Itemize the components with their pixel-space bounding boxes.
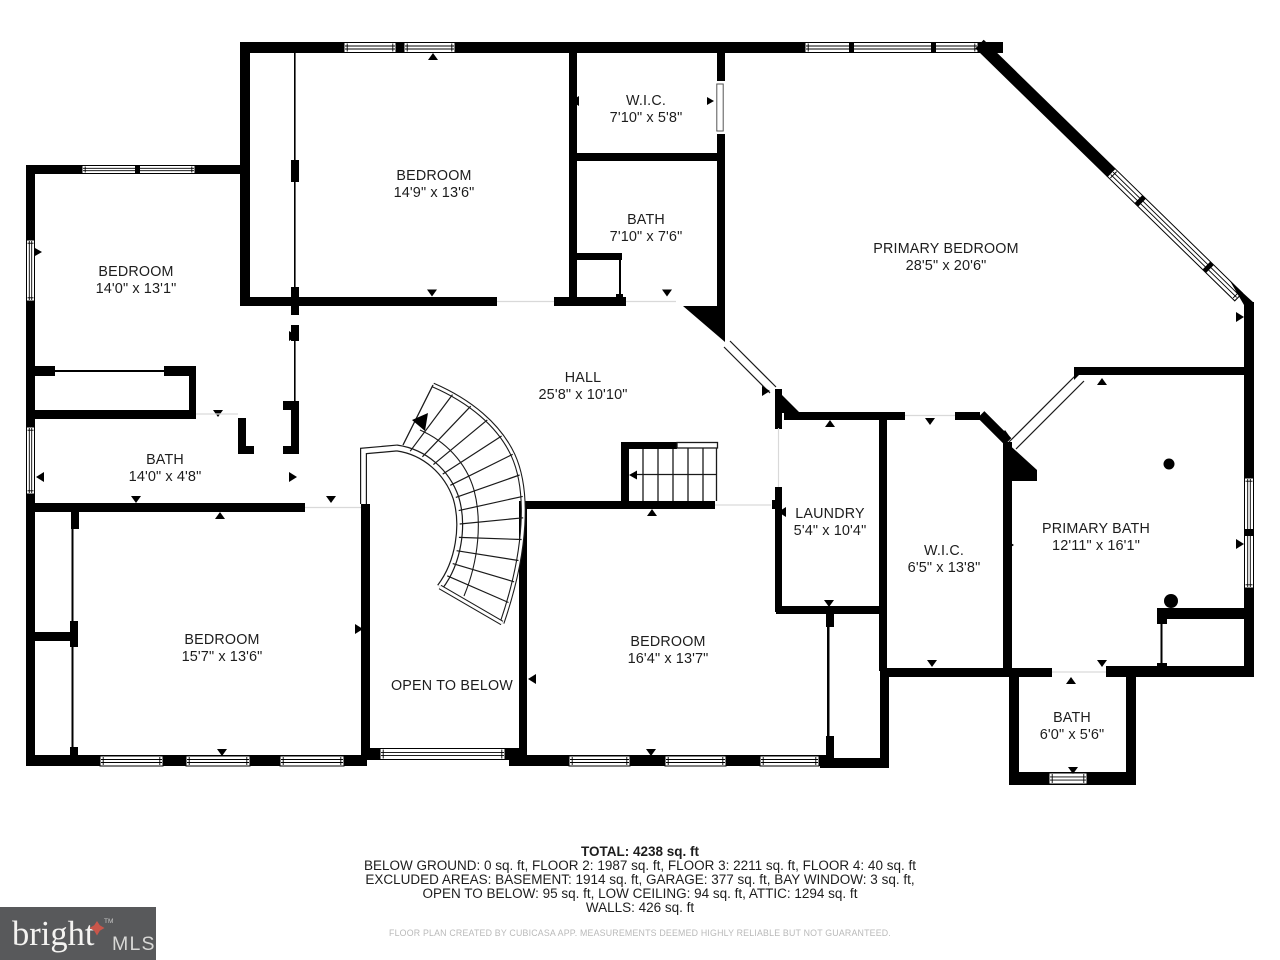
svg-text:HALL: HALL [565,370,602,386]
svg-text:6'0" x 5'6": 6'0" x 5'6" [1040,727,1105,743]
svg-text:EXCLUDED AREAS: BASEMENT: 1914: EXCLUDED AREAS: BASEMENT: 1914 sq. ft, G… [365,872,914,887]
svg-text:W.I.C.: W.I.C. [924,543,964,559]
svg-text:15'7" x 13'6": 15'7" x 13'6" [182,649,263,665]
svg-text:MLS: MLS [112,933,156,955]
svg-text:12'11" x 16'1": 12'11" x 16'1" [1052,538,1140,554]
svg-text:25'8" x 10'10": 25'8" x 10'10" [539,387,628,403]
svg-text:TM: TM [104,918,113,925]
svg-text:PRIMARY BATH: PRIMARY BATH [1042,521,1150,537]
svg-text:FLOOR PLAN CREATED BY CUBICASA: FLOOR PLAN CREATED BY CUBICASA APP. MEAS… [389,928,891,938]
svg-text:OPEN TO BELOW: OPEN TO BELOW [391,678,513,694]
svg-text:6'5" x 13'8": 6'5" x 13'8" [908,560,981,576]
svg-text:BATH: BATH [627,212,665,228]
svg-text:bright: bright [12,915,95,953]
svg-text:BATH: BATH [1053,710,1091,726]
svg-text:BATH: BATH [146,452,184,468]
svg-text:LAUNDRY: LAUNDRY [795,506,865,522]
svg-text:OPEN TO BELOW: 95 sq. ft, LOW: OPEN TO BELOW: 95 sq. ft, LOW CEILING: 9… [423,886,858,901]
svg-text:BELOW GROUND: 0 sq. ft, FLOOR: BELOW GROUND: 0 sq. ft, FLOOR 2: 1987 sq… [364,858,916,873]
svg-text:TOTAL: 4238 sq. ft: TOTAL: 4238 sq. ft [581,844,700,859]
svg-text:28'5" x 20'6": 28'5" x 20'6" [906,258,987,274]
svg-text:BEDROOM: BEDROOM [396,168,471,184]
svg-text:16'4" x 13'7": 16'4" x 13'7" [628,651,709,667]
svg-text:14'0" x 13'1": 14'0" x 13'1" [96,281,177,297]
svg-text:5'4" x 10'4": 5'4" x 10'4" [794,523,867,539]
svg-text:14'0" x 4'8": 14'0" x 4'8" [129,469,202,485]
svg-text:W.I.C.: W.I.C. [626,93,666,109]
svg-text:7'10" x 5'8": 7'10" x 5'8" [610,110,683,126]
svg-text:14'9" x 13'6": 14'9" x 13'6" [394,185,475,201]
svg-text:BEDROOM: BEDROOM [184,632,259,648]
svg-text:BEDROOM: BEDROOM [98,264,173,280]
svg-text:7'10" x 7'6": 7'10" x 7'6" [610,229,683,245]
svg-text:BEDROOM: BEDROOM [630,634,705,650]
svg-text:WALLS: 426 sq. ft: WALLS: 426 sq. ft [586,900,695,915]
svg-text:PRIMARY BEDROOM: PRIMARY BEDROOM [873,241,1018,257]
